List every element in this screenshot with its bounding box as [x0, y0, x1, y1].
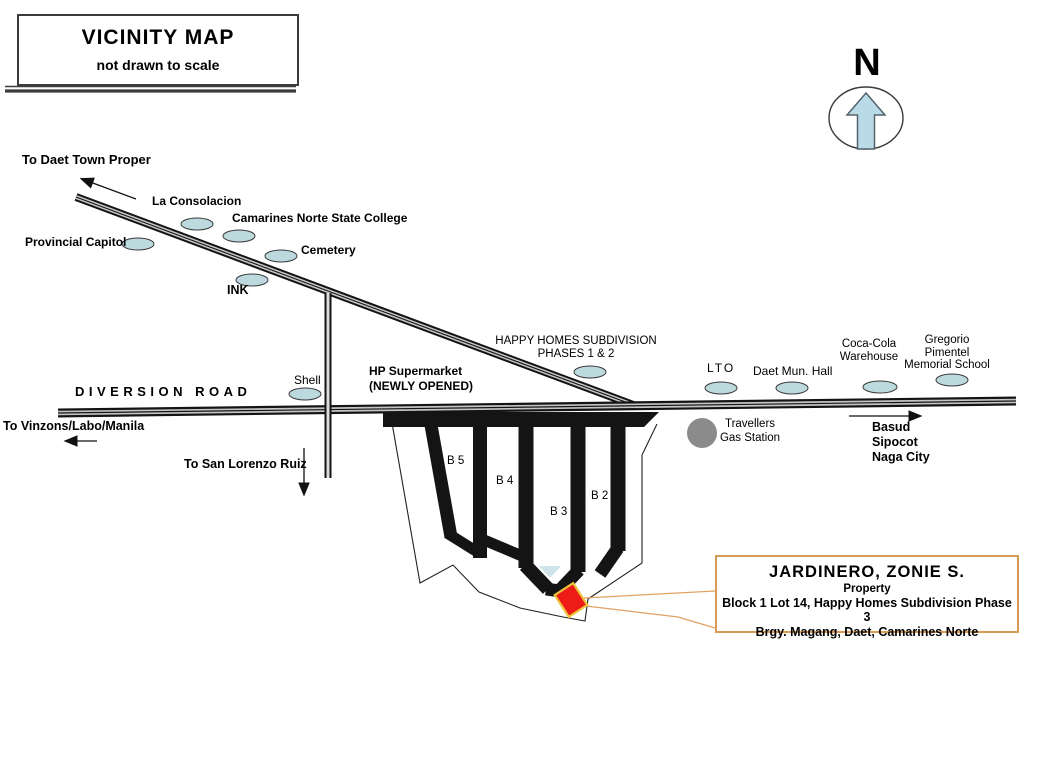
- landmark-label-ink: INK: [227, 284, 249, 298]
- landmark-marker-lto: [705, 382, 737, 394]
- direction-label-daet: To Daet Town Proper: [22, 153, 151, 167]
- landmark-label-provincial-capitol: Provincial Capitol: [25, 236, 126, 249]
- landmark-label-gregorio: Gregorio Pimentel Memorial School: [899, 334, 995, 372]
- compass-icon: [829, 87, 903, 149]
- landmark-label-hp-supermarket: HP Supermarket (NEWLY OPENED): [369, 364, 473, 394]
- subdivision-street: [431, 425, 451, 537]
- landmark-marker-cemetery: [265, 250, 297, 262]
- subdivision-main-road: [383, 412, 659, 427]
- block-label-b2: B 2: [591, 490, 608, 502]
- property-type: Property: [717, 583, 1017, 595]
- landmark-label-coca-cola: Coca-Cola Warehouse: [836, 338, 902, 364]
- landmark-label-happy-homes: HAPPY HOMES SUBDIVISION PHASES 1 & 2: [492, 335, 660, 361]
- subdivision-streets: [431, 425, 618, 591]
- road-label-diversion: DIVERSION ROAD: [75, 385, 251, 399]
- landmark-label-cemetery: Cemetery: [301, 244, 356, 257]
- title-box-underline: [5, 87, 296, 92]
- subdivision-street: [484, 540, 522, 556]
- arrow-to-daet: [82, 179, 136, 199]
- block-label-b4: B 4: [496, 475, 513, 487]
- landmark-label-cnsc: Camarines Norte State College: [232, 212, 407, 225]
- landmark-label-lto: LTO: [707, 362, 735, 375]
- property-info-box: JARDINERO, ZONIE S. Property Block 1 Lot…: [715, 555, 1019, 633]
- subdivision-street: [600, 548, 618, 574]
- map-subtitle: not drawn to scale: [19, 57, 297, 73]
- landmark-marker-daet-hall: [776, 382, 808, 394]
- direction-label-basud: Basud Sipocot Naga City: [872, 420, 930, 465]
- north-arrow-icon: [847, 93, 885, 149]
- landmark-label-daet-hall: Daet Mun. Hall: [753, 365, 832, 378]
- landmark-marker-gregorio: [936, 374, 968, 386]
- vicinity-map: VICINITY MAP not drawn to scale N To Dae…: [0, 0, 1056, 768]
- landmark-marker-happy-homes: [574, 366, 606, 378]
- map-title: VICINITY MAP: [19, 26, 297, 50]
- landmark-marker-cnsc: [223, 230, 255, 242]
- daet-road: [76, 197, 636, 406]
- property-address-1: Block 1 Lot 14, Happy Homes Subdivision …: [717, 596, 1017, 624]
- landmark-marker-provincial-capitol: [122, 238, 154, 250]
- compass-north-label: N: [846, 42, 888, 85]
- title-box: VICINITY MAP not drawn to scale: [17, 14, 299, 86]
- property-callout-lines: [584, 591, 715, 628]
- block-label-b3: B 3: [550, 506, 567, 518]
- direction-label-san-lorenzo: To San Lorenzo Ruiz: [184, 458, 307, 472]
- direction-label-vinzons: To Vinzons/Labo/Manila: [3, 420, 144, 434]
- landmark-label-travellers: Travellers Gas Station: [716, 417, 784, 445]
- block-label-b5: B 5: [447, 455, 464, 467]
- property-address-2: Brgy. Magang, Daet, Camarines Norte: [717, 625, 1017, 639]
- diversion-road: [58, 401, 1016, 413]
- property-owner: JARDINERO, ZONIE S.: [717, 563, 1017, 582]
- landmark-marker-la-consolacion: [181, 218, 213, 230]
- landmark-label-shell: Shell: [294, 374, 321, 387]
- landmark-label-la-consolacion: La Consolacion: [152, 195, 241, 208]
- landmark-marker-coca-cola: [863, 381, 897, 393]
- landmark-marker-shell: [289, 388, 321, 400]
- gas-station-marker: [687, 418, 717, 448]
